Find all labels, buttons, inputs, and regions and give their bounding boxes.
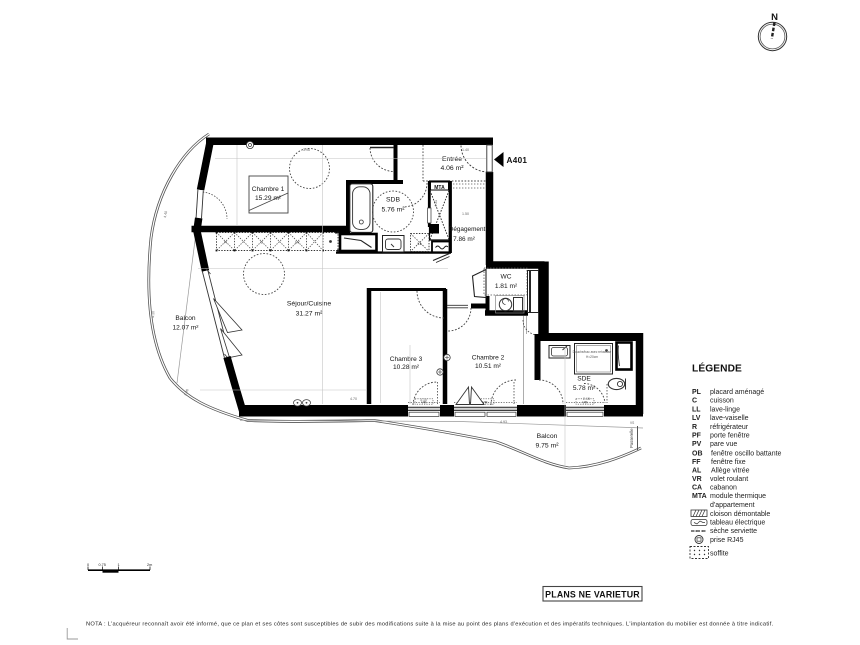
svg-text:prise RJ45: prise RJ45 xyxy=(710,537,744,544)
svg-text:PF: PF xyxy=(692,433,702,440)
svg-text:Dégagement: Dégagement xyxy=(449,226,486,233)
svg-text:fenêtre fixe: fenêtre fixe xyxy=(711,459,746,466)
svg-text:5.78 m²: 5.78 m² xyxy=(573,385,596,392)
svg-text:WC: WC xyxy=(501,274,512,281)
svg-text:AL: AL xyxy=(692,468,702,475)
svg-text:MTA: MTA xyxy=(434,185,445,191)
svg-text:soffite: soffite xyxy=(710,551,729,558)
svg-text:sèche serviette: sèche serviette xyxy=(710,528,757,535)
svg-text:1.50: 1.50 xyxy=(462,212,469,216)
svg-text:cabanon: cabanon xyxy=(710,485,737,492)
svg-text:placard aménagé: placard aménagé xyxy=(710,389,764,396)
svg-text:4.10: 4.10 xyxy=(151,311,155,318)
svg-text:1.81 m²: 1.81 m² xyxy=(495,283,518,290)
svg-text:R: R xyxy=(224,241,227,245)
svg-text:C: C xyxy=(260,241,263,245)
svg-text:SDB: SDB xyxy=(386,197,400,204)
svg-text:OB: OB xyxy=(692,451,703,458)
svg-text:PLANS NE VARIETUR: PLANS NE VARIETUR xyxy=(545,589,640,599)
svg-text:SDE: SDE xyxy=(577,376,591,383)
svg-text:LL: LL xyxy=(417,241,422,246)
svg-text:Chambre 3: Chambre 3 xyxy=(390,356,423,363)
svg-text:H=20cm: H=20cm xyxy=(586,355,598,359)
svg-text:31.27 m²: 31.27 m² xyxy=(296,311,324,318)
svg-text:LV: LV xyxy=(692,415,701,422)
svg-text:pare vue: pare vue xyxy=(710,441,737,448)
svg-text:Allège vitrée: Allège vitrée xyxy=(711,468,750,475)
svg-text:d'appartement: d'appartement xyxy=(710,502,755,509)
svg-text:Chambre 2: Chambre 2 xyxy=(472,354,505,361)
svg-text:lave-linge: lave-linge xyxy=(710,406,740,413)
svg-text:10.28 m²: 10.28 m² xyxy=(393,364,420,371)
svg-text:Chambre 1: Chambre 1 xyxy=(252,186,285,193)
svg-text:PV: PV xyxy=(692,441,702,448)
svg-text:4.31: 4.31 xyxy=(434,200,438,207)
svg-text:LÉGENDE: LÉGENDE xyxy=(692,362,742,375)
svg-text:NOTA : L'acquéreur reconnaît a: NOTA : L'acquéreur reconnaît avoir été i… xyxy=(86,622,774,628)
svg-text:LL: LL xyxy=(692,406,701,413)
svg-text:4.06 m²: 4.06 m² xyxy=(440,165,464,172)
svg-text:0.75: 0.75 xyxy=(99,563,106,567)
svg-text:5.76 m²: 5.76 m² xyxy=(381,207,405,214)
svg-text:Séjour/Cuisine: Séjour/Cuisine xyxy=(287,301,331,308)
svg-text:1.40: 1.40 xyxy=(462,148,469,152)
svg-text:10.51 m²: 10.51 m² xyxy=(475,363,502,370)
svg-text:7.86 m²: 7.86 m² xyxy=(453,236,475,243)
svg-text:0: 0 xyxy=(87,563,89,567)
svg-text:4.93: 4.93 xyxy=(500,420,507,424)
svg-text:VR: VR xyxy=(692,476,702,483)
svg-text:lave-vaiselle: lave-vaiselle xyxy=(710,415,749,422)
svg-text:VS: VS xyxy=(630,421,634,425)
svg-text:volet roulant: volet roulant xyxy=(710,476,748,483)
svg-text:porte fenêtre: porte fenêtre xyxy=(710,433,750,440)
svg-text:module thermique: module thermique xyxy=(710,493,766,500)
svg-text:2.15: 2.15 xyxy=(583,397,590,401)
svg-text:N: N xyxy=(771,12,778,23)
svg-text:FF: FF xyxy=(692,459,701,466)
svg-text:3.10: 3.10 xyxy=(420,398,427,402)
svg-text:Balcon: Balcon xyxy=(175,315,195,322)
svg-text:Passerelle: Passerelle xyxy=(629,428,634,448)
svg-text:A401: A401 xyxy=(507,156,528,165)
svg-text:15.29 m²: 15.29 m² xyxy=(255,195,282,202)
svg-text:réfrigérateur: réfrigérateur xyxy=(710,424,749,431)
svg-text:9.75 m²: 9.75 m² xyxy=(535,443,559,450)
svg-text:fenêtre oscillo battante: fenêtre oscillo battante xyxy=(711,451,782,458)
svg-text:Balcon: Balcon xyxy=(537,433,558,440)
svg-text:C: C xyxy=(692,398,697,405)
svg-text:tableau électrique: tableau électrique xyxy=(710,520,765,527)
svg-text:1: 1 xyxy=(118,563,120,567)
svg-text:cuisson: cuisson xyxy=(710,398,734,405)
svg-text:CA: CA xyxy=(692,485,702,492)
svg-text:12.07 m²: 12.07 m² xyxy=(172,324,199,331)
svg-text:2m: 2m xyxy=(147,563,152,567)
svg-text:Entrée: Entrée xyxy=(442,156,462,163)
svg-text:MTA: MTA xyxy=(692,493,707,500)
svg-text:R: R xyxy=(692,424,697,431)
svg-text:4.70: 4.70 xyxy=(350,397,357,401)
svg-text:LV: LV xyxy=(295,241,300,245)
svg-text:PL: PL xyxy=(692,389,702,396)
svg-text:3.96: 3.96 xyxy=(303,148,310,152)
svg-text:cloison démontable: cloison démontable xyxy=(710,511,770,518)
